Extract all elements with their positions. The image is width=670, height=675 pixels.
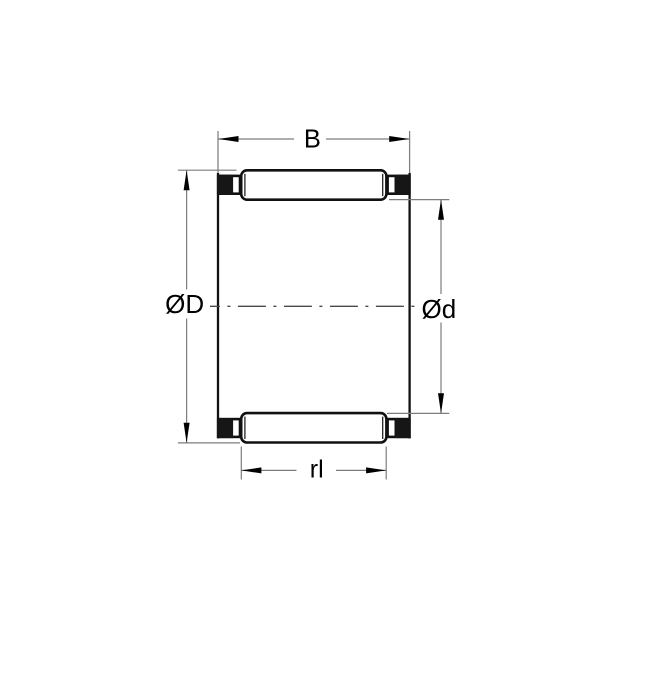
svg-text:rl: rl	[310, 455, 324, 483]
svg-text:ØD: ØD	[165, 289, 204, 319]
svg-text:B: B	[304, 125, 321, 153]
svg-text:Ød: Ød	[422, 294, 457, 324]
